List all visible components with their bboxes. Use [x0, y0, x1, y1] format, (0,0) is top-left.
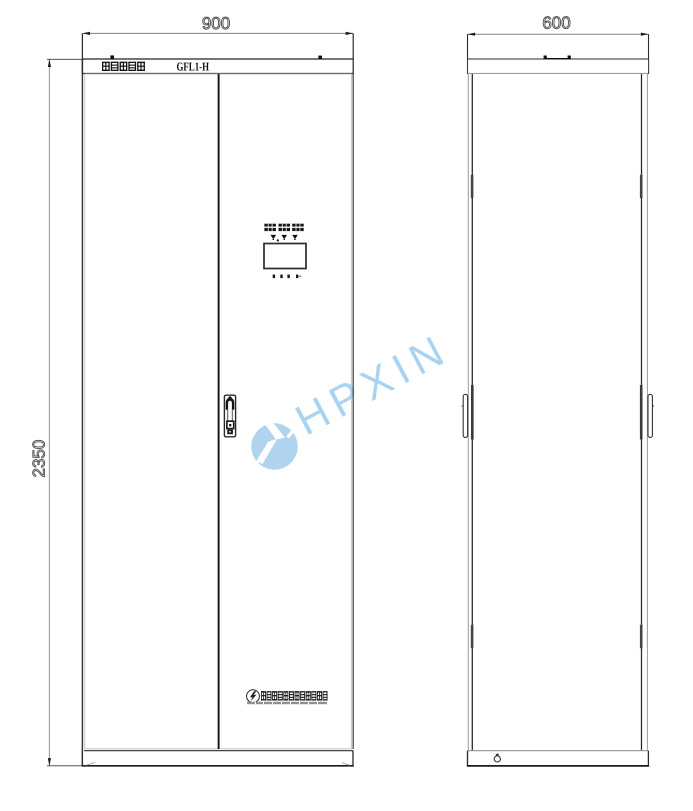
svg-text:900: 900 — [202, 14, 230, 33]
svg-text:GFL1-H: GFL1-H — [177, 59, 210, 73]
svg-text:2350: 2350 — [30, 440, 49, 478]
svg-text:600: 600 — [542, 14, 570, 33]
